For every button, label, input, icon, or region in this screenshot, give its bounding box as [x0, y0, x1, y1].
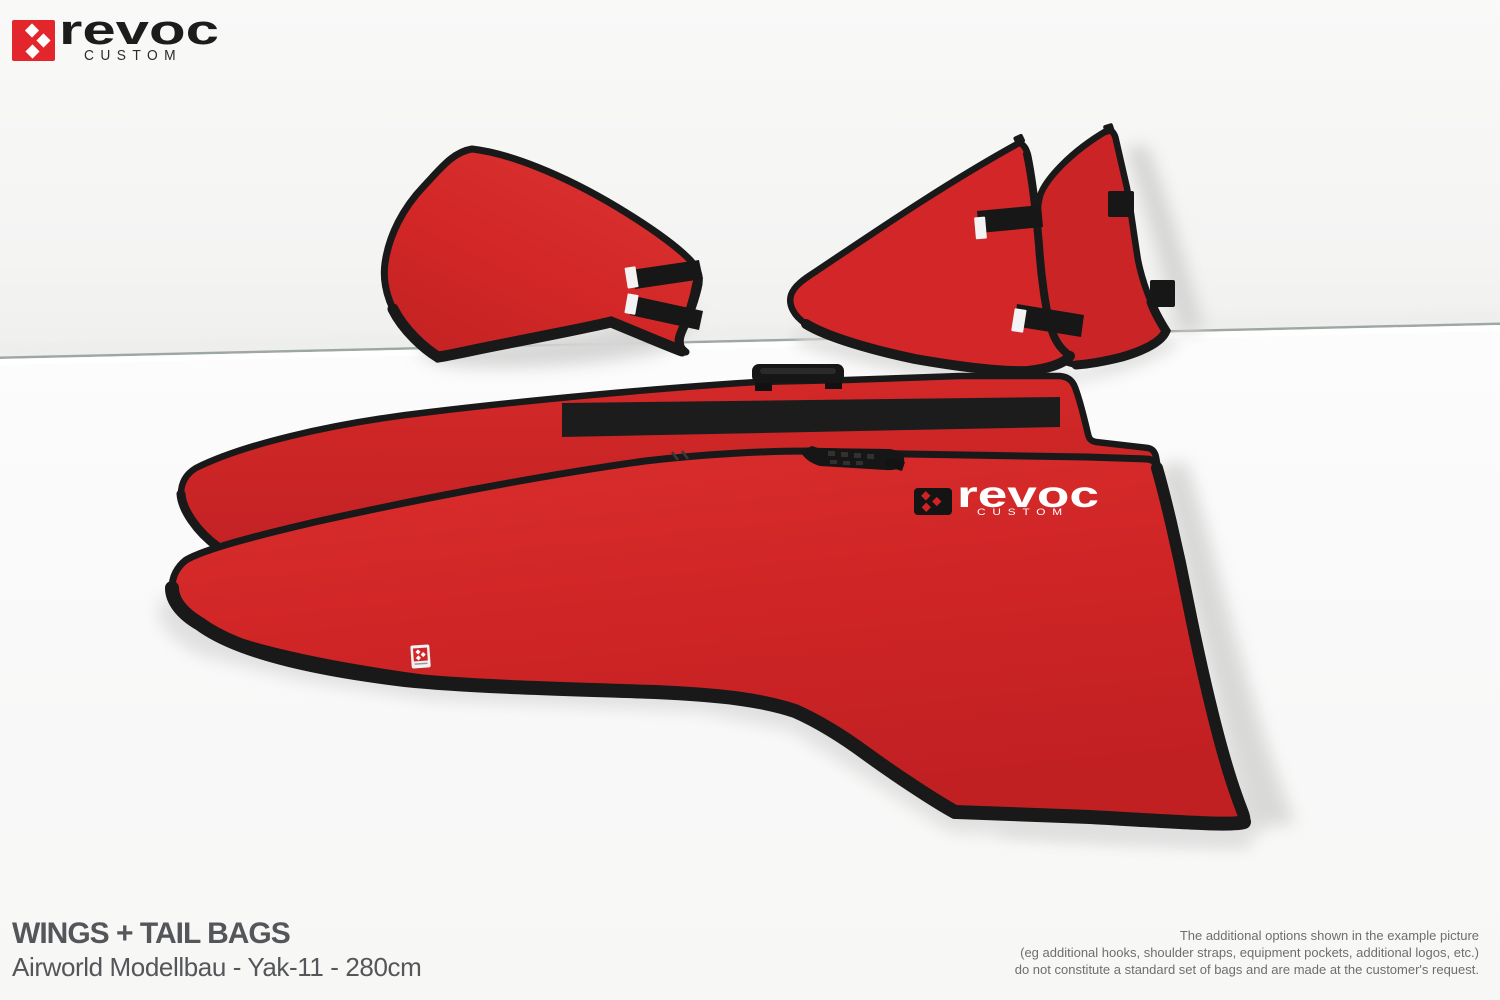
svg-text:CUSTOM: CUSTOM	[84, 47, 182, 64]
svg-text:revoc: revoc	[59, 6, 219, 53]
svg-text:CUSTOM: CUSTOM	[977, 507, 1069, 517]
